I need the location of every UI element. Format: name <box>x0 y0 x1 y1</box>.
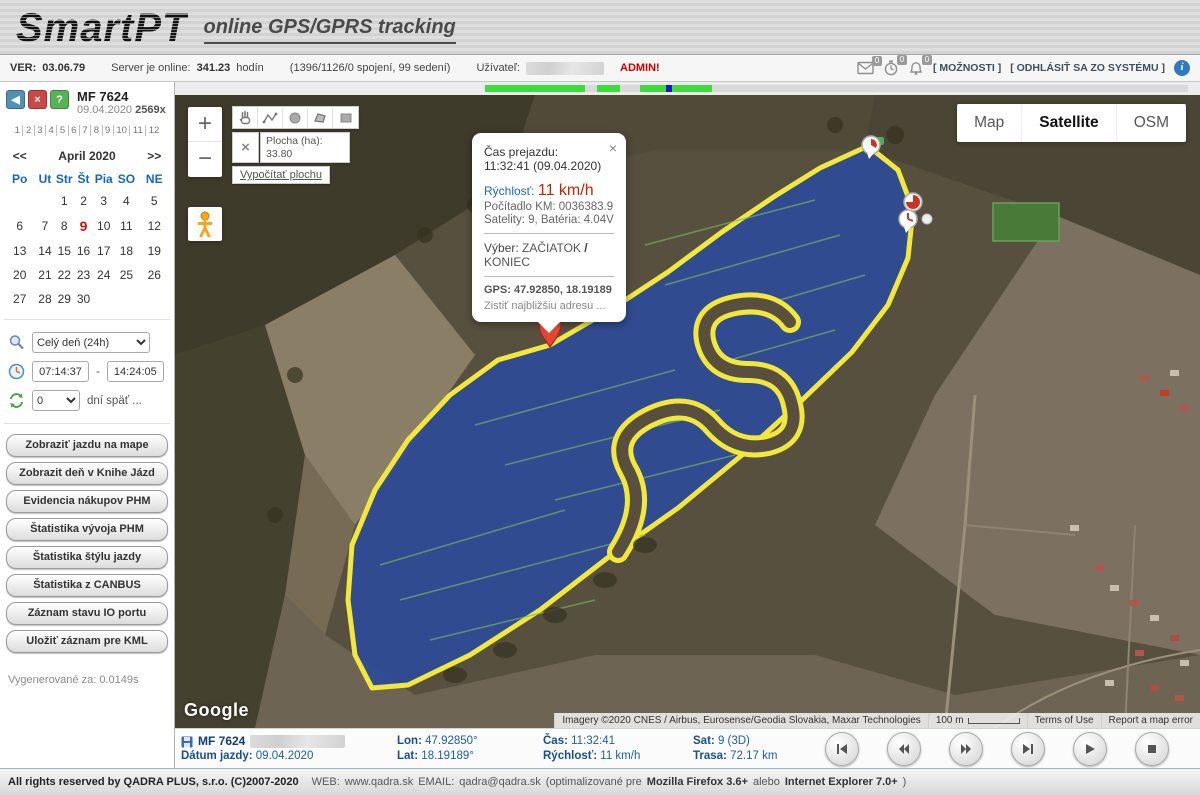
polygon-tool[interactable] <box>308 107 333 128</box>
calendar-day[interactable]: 5 <box>138 189 171 213</box>
options-button[interactable]: [ MOŽNOSTI ] <box>933 62 1001 74</box>
optimized-note-close: ) <box>903 776 907 788</box>
stop-icon <box>1146 743 1158 755</box>
popup-close-icon[interactable]: × <box>609 140 617 156</box>
dist-value: 72.17 km <box>730 750 777 762</box>
time-value: 11:32:41 <box>571 735 615 747</box>
play-button[interactable] <box>1073 732 1107 766</box>
divider <box>4 423 170 424</box>
range-row: Celý deň (24h) <box>0 328 174 357</box>
month-tab-2[interactable]: 2 <box>23 125 34 136</box>
close-vehicle-button[interactable]: × <box>28 90 47 109</box>
skip-end-button[interactable] <box>1011 732 1045 766</box>
weekday-header: Ut <box>36 168 53 189</box>
top-toolbar: VER: 03.06.79 Server je online: 341.23 h… <box>0 55 1200 82</box>
month-tab-12[interactable]: 12 <box>146 125 162 136</box>
calendar-day[interactable]: 27 <box>3 287 36 311</box>
app-window: SmartPT online GPS/GPRS tracking VER: 03… <box>0 0 1200 795</box>
weekday-header: Št <box>75 168 92 189</box>
calendar-day[interactable]: 23 <box>75 263 92 287</box>
calendar-day[interactable]: 24 <box>92 263 115 287</box>
speed-value: 11 km/h <box>600 750 640 762</box>
version-value: 03.06.79 <box>42 62 85 74</box>
fuel-stats-button[interactable]: Štatistika vývoja PHM <box>6 518 168 541</box>
calendar-day[interactable]: 6 <box>3 213 36 239</box>
time-range-select[interactable]: Celý deň (24h) <box>32 332 150 353</box>
month-tab-6[interactable]: 6 <box>69 125 80 136</box>
save-kml-button[interactable]: Uložiť záznam pre KML <box>6 630 168 653</box>
rectangle-icon <box>338 111 354 125</box>
user-label: Užívateľ: <box>476 62 520 74</box>
calendar-day[interactable]: 30 <box>75 287 92 311</box>
status-vehicle-name: MF 7624 <box>198 734 245 749</box>
month-tab-5[interactable]: 5 <box>57 125 68 136</box>
calendar-day[interactable]: 13 <box>3 239 36 263</box>
time-to-input[interactable] <box>107 361 164 382</box>
copyright-text: All rights reserved by QADRA PLUS, s.r.o… <box>8 776 299 788</box>
month-tab-10[interactable]: 10 <box>114 125 131 136</box>
clock-icon <box>8 363 25 380</box>
street-view-pegman[interactable] <box>188 207 222 241</box>
calendar-title: April 2020 <box>36 144 137 168</box>
vehicle-header: MF 7624 09.04.2020 2569x <box>77 90 166 116</box>
play-icon <box>1084 743 1096 755</box>
stop-button[interactable] <box>1135 732 1169 766</box>
calendar: << April 2020 >> Po Ut Str Št Pia SO NE … <box>3 144 171 311</box>
playback-controls <box>825 732 1169 766</box>
vehicle-row: MF 7624 <box>181 734 345 749</box>
app-tagline: online GPS/GPRS tracking <box>204 16 456 44</box>
timer-badge: 0 <box>897 55 907 65</box>
show-day-logbook-button[interactable]: Zobrazit deň v Knihe Jázd <box>6 462 168 485</box>
back-button[interactable]: ◀ <box>6 90 25 109</box>
hand-icon <box>237 110 253 125</box>
search-icon <box>8 334 25 351</box>
mail-badge: 0 <box>872 56 882 66</box>
optimized-note-pre: (optimalizované pre <box>546 776 642 788</box>
select-start-link[interactable]: ZAČIATOK <box>522 241 581 255</box>
vehicle-name: MF 7624 <box>77 90 166 104</box>
divider <box>484 233 614 234</box>
server-status-label: Server je online: <box>111 62 191 74</box>
server-hours-suffix: hodín <box>236 62 264 74</box>
timeline-active-segment <box>640 85 712 92</box>
popup-select-row: Výber: ZAČIATOK / KONIEC <box>484 241 614 269</box>
vehicle-date-line: 09.04.2020 2569x <box>77 104 166 116</box>
divider <box>4 319 170 320</box>
time-from-input[interactable] <box>32 361 89 382</box>
calendar-day[interactable]: 19 <box>138 239 171 263</box>
calendar-day[interactable]: 16 <box>75 239 92 263</box>
show-trip-on-map-button[interactable]: Zobraziť jazdu na mape <box>6 434 168 457</box>
zoom-control: + − <box>188 107 222 177</box>
month-tab-1[interactable]: 1 <box>12 125 23 136</box>
month-tab-3[interactable]: 3 <box>35 125 46 136</box>
report-error-link[interactable]: Report a map error <box>1101 713 1200 728</box>
lon-value: 47.92850° <box>425 735 478 747</box>
weekday-header: NE <box>138 168 171 189</box>
imagery-credit: Imagery ©2020 CNES / Airbus, Eurosense/G… <box>554 713 927 728</box>
days-back-row: 0 dní späť ... <box>0 386 174 415</box>
calendar-day[interactable]: 7 <box>36 213 53 239</box>
email-link[interactable]: qadra@qadra.sk <box>459 776 541 788</box>
connections-info: (1396/1126/0 spojení, 99 sedení) <box>290 62 451 74</box>
scale-bar <box>968 718 1020 724</box>
email-label: EMAIL: <box>418 776 454 788</box>
trip-date-label: Dátum jazdy: <box>181 750 253 762</box>
sat-label: Sat: <box>693 735 715 747</box>
calendar-day[interactable]: 11 <box>115 213 137 239</box>
time-speed-column: Čas: 11:32:41 Rýchlosť: 11 km/h <box>543 734 640 764</box>
trip-date-value: 09.04.2020 <box>256 750 314 762</box>
calendar-day <box>92 287 115 311</box>
pegman-icon <box>196 211 214 237</box>
page-footer: All rights reserved by QADRA PLUS, s.r.o… <box>0 768 1200 795</box>
zoom-out-button[interactable]: − <box>188 142 222 177</box>
polygon-icon <box>312 111 328 125</box>
divider <box>484 276 614 277</box>
calendar-day[interactable]: 28 <box>36 287 53 311</box>
circle-tool[interactable] <box>283 107 308 128</box>
month-tabs: 1 2 3 4 5 6 7 8 9 10 11 12 <box>0 125 174 136</box>
calendar-day[interactable]: 18 <box>115 239 137 263</box>
map-container: + − <box>175 95 1200 728</box>
area-info: Plocha (ha): 33.80 <box>260 132 350 163</box>
draw-toolbar <box>232 106 359 129</box>
toolbar-right: 0 0 0 [ MOŽNOSTI ] [ ODHLÁSIŤ SA ZO SYST… <box>857 60 1190 76</box>
month-tab-7[interactable]: 7 <box>80 125 91 136</box>
canbus-stats-button[interactable]: Štatistika z CANBUS <box>6 574 168 597</box>
area-value: 33.80 <box>266 148 344 161</box>
track-end-marker[interactable] <box>904 193 922 211</box>
popup-speed-line: Rýchlosť: 11 km/h <box>484 182 614 200</box>
save-disk-icon[interactable] <box>181 736 193 748</box>
vehicle-column: MF 7624 Dátum jazdy: 09.04.2020 <box>181 734 345 764</box>
action-buttons: Zobraziť jazdu na mape Zobrazit deň v Kn… <box>0 434 174 653</box>
layer-map[interactable]: Map <box>957 104 1021 142</box>
calendar-day[interactable]: 26 <box>138 263 171 287</box>
io-port-log-button[interactable]: Záznam stavu IO portu <box>6 602 168 625</box>
skip-end-icon <box>1022 743 1034 755</box>
map-attribution: Imagery ©2020 CNES / Airbus, Eurosense/G… <box>554 713 1200 728</box>
app-logo: SmartPT <box>16 6 188 50</box>
days-back-label: dní späť ... <box>87 395 142 407</box>
map-canvas[interactable] <box>175 95 1200 728</box>
speed-value: 11 km/h <box>538 182 594 199</box>
generation-time: Vygenerované za: 0.0149s <box>0 658 174 686</box>
username-redacted <box>526 62 604 75</box>
calendar-day[interactable]: 4 <box>115 189 137 213</box>
calendar-day <box>138 287 171 311</box>
help-button[interactable]: ? <box>50 90 69 109</box>
refresh-icon <box>8 392 25 409</box>
web-label: WEB: <box>312 776 340 788</box>
calendar-day[interactable]: 17 <box>92 239 115 263</box>
month-tab-11[interactable]: 11 <box>130 125 146 136</box>
calendar-day[interactable]: 25 <box>115 263 137 287</box>
calendar-day[interactable]: 15 <box>54 239 75 263</box>
weekday-header: Pia <box>92 168 115 189</box>
rectangle-tool[interactable] <box>333 107 358 128</box>
select-separator: / <box>584 241 587 255</box>
sports-field <box>993 203 1059 241</box>
calendar-day[interactable]: 12 <box>138 213 171 239</box>
logout-button[interactable]: [ ODHLÁSIŤ SA ZO SYSTÉMU ] <box>1010 62 1165 74</box>
calendar-day[interactable]: 3 <box>92 189 115 213</box>
vehicle-date: 09.04.2020 <box>77 104 132 116</box>
calendar-day[interactable]: 1 <box>54 189 75 213</box>
calendar-day[interactable]: 21 <box>36 263 53 287</box>
timeline-position-marker <box>666 85 672 92</box>
server-hours: 341.23 <box>197 62 231 74</box>
fast-forward-icon <box>960 743 972 755</box>
version-label: VER: <box>10 62 36 74</box>
select-end-link[interactable]: KONIEC <box>484 255 530 269</box>
days-back-select[interactable]: 0 <box>32 390 80 411</box>
terms-link[interactable]: Terms of Use <box>1027 713 1101 728</box>
popup-satellites: Satelity: 9, Batéria: 4.04V <box>484 214 614 226</box>
timeline-active-segment <box>597 85 620 92</box>
calendar-next[interactable]: >> <box>138 144 171 168</box>
nearest-address-link[interactable]: Zistiť najbližšiu adresu ... <box>484 300 614 312</box>
status-bar: MF 7624 Dátum jazdy: 09.04.2020 Lon: 47.… <box>175 728 1200 768</box>
web-link[interactable]: www.qadra.sk <box>345 776 413 788</box>
calendar-day[interactable]: 14 <box>36 239 53 263</box>
scale-control: 100 m <box>928 713 1027 728</box>
ie-note: Internet Explorer 7.0+ <box>785 776 898 788</box>
timer-button[interactable]: 0 <box>883 60 899 76</box>
scale-label: 100 m <box>936 715 964 726</box>
calendar-day <box>36 189 53 213</box>
fast-forward-button[interactable] <box>949 732 983 766</box>
lat-value: 18.19189° <box>421 750 474 762</box>
speed-label: Rýchlosť: <box>484 184 535 198</box>
weekday-header: Str <box>54 168 75 189</box>
lat-label: Lat: <box>397 750 418 762</box>
alarm-button[interactable]: 0 <box>908 60 924 76</box>
month-tab-8[interactable]: 8 <box>91 125 102 136</box>
calendar-day[interactable]: 20 <box>3 263 36 287</box>
sat-value: 9 (3D) <box>718 735 750 747</box>
area-box: × Plocha (ha): 33.80 <box>232 132 350 163</box>
lon-label: Lon: <box>397 735 422 747</box>
rewind-button[interactable] <box>887 732 921 766</box>
clear-area-button[interactable]: × <box>232 132 259 163</box>
circle-icon <box>288 111 302 125</box>
month-tab-4[interactable]: 4 <box>46 125 57 136</box>
popup-title: Čas prejazdu: <box>484 145 614 159</box>
activity-timeline[interactable] <box>485 85 1188 92</box>
sat-dist-column: Sat: 9 (3D) Trasa: 72.17 km <box>693 734 777 764</box>
info-icon[interactable]: i <box>1174 60 1190 76</box>
skip-start-button[interactable] <box>825 732 859 766</box>
time-separator: - <box>96 366 100 378</box>
time-row: - <box>0 357 174 386</box>
optimized-note-mid: alebo <box>753 776 780 788</box>
popup-odometer: Počítadlo KM: 0036383.9 <box>484 201 614 213</box>
trip-date-line: Dátum jazdy: 09.04.2020 <box>181 749 345 764</box>
calendar-prev[interactable]: << <box>3 144 36 168</box>
compute-area-link[interactable]: Vypočítať plochu <box>232 166 330 184</box>
dist-label: Trasa: <box>693 750 727 762</box>
month-tab-9[interactable]: 9 <box>103 125 114 136</box>
coords-column: Lon: 47.92850° Lat: 18.19189° <box>397 734 478 764</box>
record-count: 2569x <box>135 104 166 116</box>
polyline-tool[interactable] <box>258 107 283 128</box>
layer-osm[interactable]: OSM <box>1116 104 1186 142</box>
pan-tool[interactable] <box>233 107 258 128</box>
select-label: Výber: <box>484 241 519 255</box>
zoom-in-button[interactable]: + <box>188 107 222 142</box>
app-header: SmartPT online GPS/GPRS tracking <box>0 0 1200 55</box>
timeline-active-segment <box>485 85 585 92</box>
sidebar: ◀ × ? MF 7624 09.04.2020 2569x 1 2 3 4 5… <box>0 82 175 768</box>
google-logo: Google <box>184 700 249 721</box>
popup-gps: GPS: 47.92850, 18.19189 <box>484 284 614 296</box>
calendar-day[interactable]: 2 <box>75 189 92 213</box>
popup-time: 11:32:41 (09.04.2020) <box>484 159 614 173</box>
admin-badge: ADMIN! <box>620 62 660 74</box>
calendar-day <box>115 287 137 311</box>
firefox-note: Mozilla Firefox 3.6+ <box>647 776 748 788</box>
sidebar-header: ◀ × ? MF 7624 09.04.2020 2569x <box>0 88 174 116</box>
weekday-header: SO <box>115 168 137 189</box>
calendar-day-selected[interactable]: 9 <box>75 213 92 239</box>
driving-style-stats-button[interactable]: Štatistika štýlu jazdy <box>6 546 168 569</box>
area-label: Plocha (ha): <box>266 135 344 148</box>
calendar-day <box>3 189 36 213</box>
calendar-day[interactable]: 8 <box>54 213 75 239</box>
track-point-popup: × Čas prejazdu: 11:32:41 (09.04.2020) Rý… <box>472 133 626 322</box>
polyline-icon <box>262 111 278 125</box>
speed-label: Rýchlosť: <box>543 750 597 762</box>
messages-button[interactable]: 0 <box>857 61 874 75</box>
time-label: Čas: <box>543 735 568 747</box>
map-layer-switcher: Map Satellite OSM <box>957 104 1186 142</box>
redacted-info <box>250 735 345 748</box>
skip-start-icon <box>836 743 848 755</box>
fuel-purchases-button[interactable]: Evidencia nákupov PHM <box>6 490 168 513</box>
weekday-header: Po <box>3 168 36 189</box>
alarm-badge: 0 <box>922 55 932 65</box>
calendar-day[interactable]: 10 <box>92 213 115 239</box>
calendar-day[interactable]: 22 <box>54 263 75 287</box>
layer-satellite[interactable]: Satellite <box>1021 104 1115 142</box>
rewind-icon <box>898 743 910 755</box>
calendar-day[interactable]: 29 <box>54 287 75 311</box>
